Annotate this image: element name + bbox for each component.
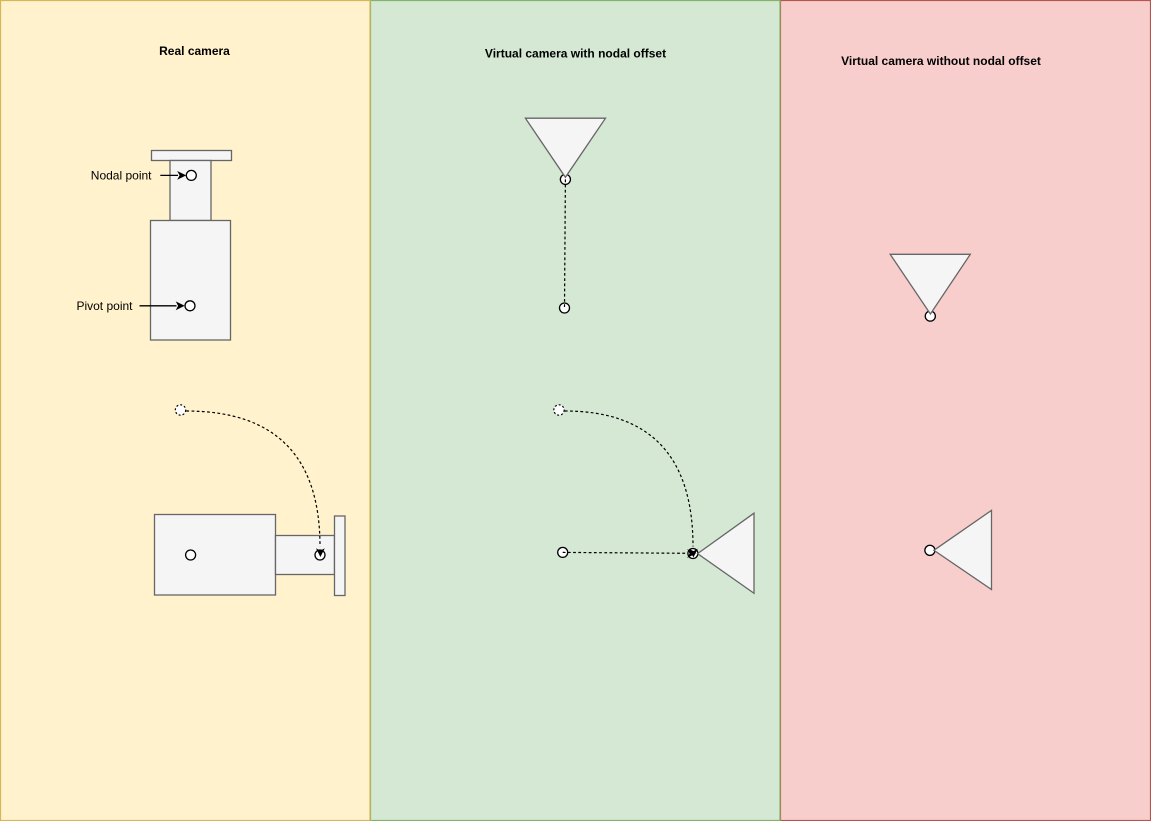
svg-text:Virtual camera with nodal offs: Virtual camera with nodal offset bbox=[485, 47, 666, 61]
svg-text:Pivot point: Pivot point bbox=[76, 299, 133, 313]
svg-text:Virtual camera without nodal o: Virtual camera without nodal offset bbox=[841, 54, 1041, 68]
svg-text:Nodal point: Nodal point bbox=[91, 169, 152, 183]
svg-text:Real camera: Real camera bbox=[159, 44, 230, 58]
